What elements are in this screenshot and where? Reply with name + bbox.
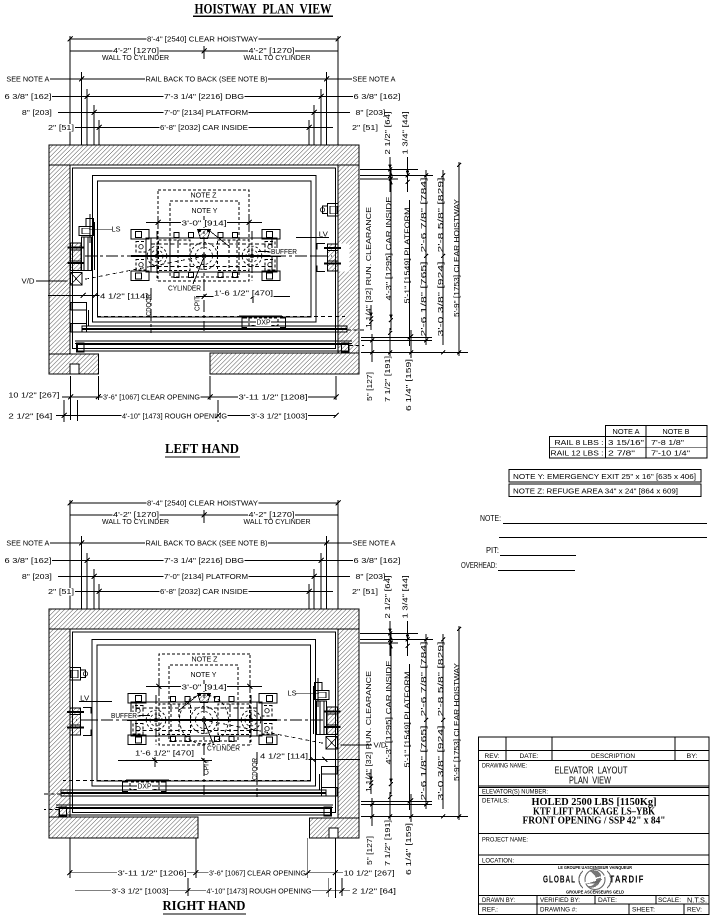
svg-text:2'-8 5/8" [829]: 2'-8 5/8" [829] (436, 178, 445, 253)
svg-text:PLAN VIEW: PLAN VIEW (569, 776, 611, 787)
svg-text:REF.:: REF.: (482, 907, 498, 914)
svg-text:BUFFER: BUFFER (271, 247, 298, 256)
svg-text:1'-6 1/2" [470]: 1'-6 1/2" [470] (214, 288, 273, 297)
svg-text:6 1/4" [159]: 6 1/4" [159] (404, 359, 413, 411)
svg-text:SEE NOTE A: SEE NOTE A (6, 539, 49, 548)
svg-text:RAIL 8 LBS :: RAIL 8 LBS : (555, 438, 604, 447)
svg-text:8" [203]: 8" [203] (22, 108, 52, 117)
svg-text:DATE:: DATE: (598, 897, 617, 904)
svg-text:8'-4" [2540] CLEAR HOISTWAY: 8'-4" [2540] CLEAR HOISTWAY (147, 499, 258, 508)
svg-text:NOTE Y: NOTE Y (192, 206, 218, 215)
svg-text:SEE NOTE A: SEE NOTE A (353, 75, 396, 84)
svg-text:4 1/2" [114]: 4 1/2" [114] (260, 752, 308, 761)
svg-text:2 1/2" [64]: 2 1/2" [64] (352, 887, 396, 896)
svg-text:2" [51]: 2" [51] (352, 123, 378, 132)
svg-text:5" [127]: 5" [127] (365, 372, 374, 401)
svg-text:NOTE Y: EMERGENCY EXIT 25" x 1: NOTE Y: EMERGENCY EXIT 25" x 16" [635 x … (513, 472, 696, 481)
svg-text:3'-0" [914]: 3'-0" [914] (182, 219, 227, 228)
svg-text:SEE NOTE A: SEE NOTE A (353, 539, 396, 548)
svg-text:NOTE A: NOTE A (613, 427, 640, 436)
svg-text:1 3/4" [44]: 1 3/4" [44] (401, 576, 410, 619)
svg-text:NOTE B: NOTE B (663, 427, 690, 436)
svg-text:3'-0 3/8" [924]: 3'-0 3/8" [924] (436, 726, 445, 801)
svg-text:NOTE Z: REFUGE AREA 34" x 24": NOTE Z: REFUGE AREA 34" x 24" [864 x 609… (513, 486, 678, 495)
svg-text:LS: LS (112, 225, 121, 234)
svg-text:6'-8" [2032] CAR INSIDE: 6'-8" [2032] CAR INSIDE (160, 587, 248, 596)
svg-text:CDOOR: CDOOR (252, 758, 259, 780)
svg-text:7'-3 1/4" [2216] DBG: 7'-3 1/4" [2216] DBG (164, 92, 244, 101)
svg-text:3'-11 1/2" [1208]: 3'-11 1/2" [1208] (239, 393, 308, 402)
svg-text:NOTE:: NOTE: (480, 514, 501, 523)
svg-text:2'-6 1/8" [765]: 2'-6 1/8" [765] (419, 726, 428, 801)
svg-text:WALL TO CYLINDER: WALL TO CYLINDER (102, 53, 170, 62)
svg-text:DETAILS:: DETAILS: (482, 798, 509, 805)
svg-text:LS: LS (288, 689, 297, 698)
svg-text:5'-1" [1549] PLATFORM: 5'-1" [1549] PLATFORM (403, 672, 412, 768)
svg-text:BY:: BY: (687, 753, 698, 760)
svg-text:5'-1" [1549] PLATFORM: 5'-1" [1549] PLATFORM (403, 208, 412, 304)
svg-text:DATE:: DATE: (520, 753, 539, 760)
svg-text:8" [203]: 8" [203] (22, 572, 52, 581)
svg-text:6 3/8" [162]: 6 3/8" [162] (354, 92, 401, 101)
svg-text:10 1/2" [267]: 10 1/2" [267] (8, 391, 59, 400)
svg-text:5" [127]: 5" [127] (365, 836, 374, 865)
svg-text:7'-0" [2134] PLATFORM: 7'-0" [2134] PLATFORM (164, 572, 248, 581)
svg-text:FRONT OPENING / SSP 42" x 84": FRONT OPENING / SSP 42" x 84" (523, 816, 666, 827)
svg-text:GLOBAL: GLOBAL (543, 875, 576, 886)
svg-text:NOTE Y: NOTE Y (191, 670, 217, 679)
svg-text:2 7/8": 2 7/8" (608, 449, 635, 458)
svg-text:REV:: REV: (687, 907, 702, 914)
svg-text:2'-6 1/8" [765]: 2'-6 1/8" [765] (419, 262, 428, 337)
svg-text:CYLINDER: CYLINDER (207, 744, 240, 753)
svg-text:SHEET:: SHEET: (632, 907, 655, 914)
svg-text:2 1/2" [64]: 2 1/2" [64] (383, 576, 392, 619)
svg-text:PIT:: PIT: (486, 546, 499, 555)
svg-text:RAIL 12 LBS :: RAIL 12 LBS : (551, 449, 604, 458)
svg-text:WALL TO CYLINDER: WALL TO CYLINDER (244, 53, 312, 62)
svg-text:8" [203]: 8" [203] (356, 108, 386, 117)
svg-text:2'-8 5/8" [829]: 2'-8 5/8" [829] (436, 642, 445, 717)
svg-text:7'-10 1/4": 7'-10 1/4" (651, 449, 690, 458)
svg-text:ELEVATOR(S) NUMBER:: ELEVATOR(S) NUMBER: (482, 789, 548, 796)
svg-text:RIGHT HAND: RIGHT HAND (163, 898, 246, 913)
svg-text:8" [203]: 8" [203] (356, 572, 386, 581)
svg-text:OVERHEAD:: OVERHEAD: (461, 561, 497, 570)
svg-text:DRAWN BY:: DRAWN BY: (482, 897, 515, 904)
svg-text:1 3/4" [44]: 1 3/4" [44] (401, 112, 410, 155)
svg-text:4'-10" [1473] ROUGH OPENING: 4'-10" [1473] ROUGH OPENING (207, 887, 312, 896)
svg-text:DESCRIPTION: DESCRIPTION (591, 753, 635, 760)
svg-text:NOTE Z: NOTE Z (191, 191, 217, 200)
svg-text:5'-9" [1753] CLEAR HOISTWAY: 5'-9" [1753] CLEAR HOISTWAY (452, 199, 461, 317)
svg-text:TARDIF: TARDIF (610, 875, 645, 886)
svg-text:1 1/4" [32] RUN. CLEARANCE: 1 1/4" [32] RUN. CLEARANCE (364, 207, 373, 328)
svg-text:LOCATION:: LOCATION: (482, 858, 514, 865)
svg-text:DXP: DXP (257, 320, 271, 327)
svg-text:2'-6 7/8" [784]: 2'-6 7/8" [784] (419, 178, 428, 253)
svg-text:CDOOR: CDOOR (146, 294, 153, 316)
svg-text:2 1/2" [64]: 2 1/2" [64] (8, 411, 52, 420)
svg-text:HOISTWAY PLAN VIEW: HOISTWAY PLAN VIEW (195, 2, 332, 18)
svg-text:WALL TO CYLINDER: WALL TO CYLINDER (102, 517, 170, 526)
svg-text:8'-4" [2540] CLEAR HOISTWAY: 8'-4" [2540] CLEAR HOISTWAY (147, 35, 258, 44)
svg-text:7 1/2" [191]: 7 1/2" [191] (383, 820, 392, 866)
svg-text:N.T.S.: N.T.S. (687, 896, 707, 905)
svg-text:6 3/8" [162]: 6 3/8" [162] (354, 556, 401, 565)
svg-text:2'-6 7/8" [784]: 2'-6 7/8" [784] (419, 642, 428, 717)
svg-text:NOTE Z: NOTE Z (192, 655, 218, 664)
svg-text:PROJECT NAME:: PROJECT NAME: (482, 837, 528, 844)
svg-text:CPIT: CPIT (204, 759, 211, 775)
svg-text:CPIT: CPIT (195, 295, 202, 311)
svg-text:7 1/2" [191]: 7 1/2" [191] (383, 356, 392, 402)
svg-text:3'-0" [914]: 3'-0" [914] (182, 683, 227, 692)
svg-text:V/D: V/D (22, 277, 36, 286)
svg-text:7'-0" [2134] PLATFORM: 7'-0" [2134] PLATFORM (164, 108, 248, 117)
svg-text:4'-3" [1295] CAR INSIDE: 4'-3" [1295] CAR INSIDE (384, 661, 393, 765)
svg-text:6'-8" [2032] CAR INSIDE: 6'-8" [2032] CAR INSIDE (160, 123, 248, 132)
svg-text:SEE NOTE A: SEE NOTE A (6, 75, 49, 84)
svg-text:WALL TO CYLINDER: WALL TO CYLINDER (244, 517, 312, 526)
svg-text:2" [51]: 2" [51] (352, 587, 378, 596)
svg-text:BUFFER: BUFFER (111, 711, 138, 720)
svg-text:3'-6" [1067] CLEAR OPENING: 3'-6" [1067] CLEAR OPENING (209, 869, 306, 878)
svg-text:3'-6" [1067] CLEAR OPENING: 3'-6" [1067] CLEAR OPENING (103, 393, 200, 402)
svg-text:5'-9" [1753] CLEAR HOISTWAY: 5'-9" [1753] CLEAR HOISTWAY (452, 663, 461, 781)
svg-text:6 3/8" [162]: 6 3/8" [162] (5, 556, 52, 565)
svg-text:7'-3 1/4" [2216] DBG: 7'-3 1/4" [2216] DBG (164, 556, 244, 565)
svg-text:DRAWING #:: DRAWING #: (540, 907, 577, 914)
svg-text:2" [51]: 2" [51] (48, 587, 74, 596)
svg-text:3'-11 1/2" [1206]: 3'-11 1/2" [1206] (118, 869, 187, 878)
svg-text:SCALE:: SCALE: (658, 897, 681, 904)
svg-text:2" [51]: 2" [51] (48, 123, 74, 132)
svg-text:VERIFIED BY:: VERIFIED BY: (540, 897, 580, 904)
svg-text:DXP: DXP (138, 784, 152, 791)
svg-text:6 1/4" [159]: 6 1/4" [159] (404, 823, 413, 875)
svg-text:1'-6 1/2" [470]: 1'-6 1/2" [470] (135, 748, 194, 757)
svg-text:RAIL BACK TO BACK (SEE NOTE B): RAIL BACK TO BACK (SEE NOTE B) (146, 75, 268, 84)
svg-text:3 15/16": 3 15/16" (608, 438, 644, 447)
svg-text:2 1/2" [64]: 2 1/2" [64] (383, 112, 392, 155)
svg-text:GROUPE ASCENSEURS GELD: GROUPE ASCENSEURS GELD (566, 890, 625, 895)
svg-text:LEFT HAND: LEFT HAND (165, 441, 239, 456)
svg-text:10 1/2" [267]: 10 1/2" [267] (344, 869, 395, 878)
svg-text:1 1/4" [32] RUN. CLEARANCE: 1 1/4" [32] RUN. CLEARANCE (364, 671, 373, 792)
svg-text:4 1/2" [114]: 4 1/2" [114] (100, 292, 148, 301)
svg-text:CYLINDER: CYLINDER (168, 284, 201, 293)
svg-text:REV:: REV: (485, 753, 500, 760)
svg-text:7'-8 1/8": 7'-8 1/8" (651, 438, 684, 447)
svg-text:RAIL BACK TO BACK (SEE NOTE B): RAIL BACK TO BACK (SEE NOTE B) (146, 539, 268, 548)
svg-text:3'-0 3/8" [924]: 3'-0 3/8" [924] (436, 262, 445, 337)
svg-text:DRAWING NAME:: DRAWING NAME: (482, 763, 527, 770)
svg-text:3'-3 1/2" [1003]: 3'-3 1/2" [1003] (112, 887, 169, 896)
svg-text:4'-3" [1295] CAR INSIDE: 4'-3" [1295] CAR INSIDE (384, 197, 393, 301)
svg-text:4'-10" [1473] ROUGH OPENING: 4'-10" [1473] ROUGH OPENING (122, 411, 227, 420)
svg-text:3'-3 1/2" [1003]: 3'-3 1/2" [1003] (251, 411, 308, 420)
svg-text:6 3/8" [162]: 6 3/8" [162] (5, 92, 52, 101)
